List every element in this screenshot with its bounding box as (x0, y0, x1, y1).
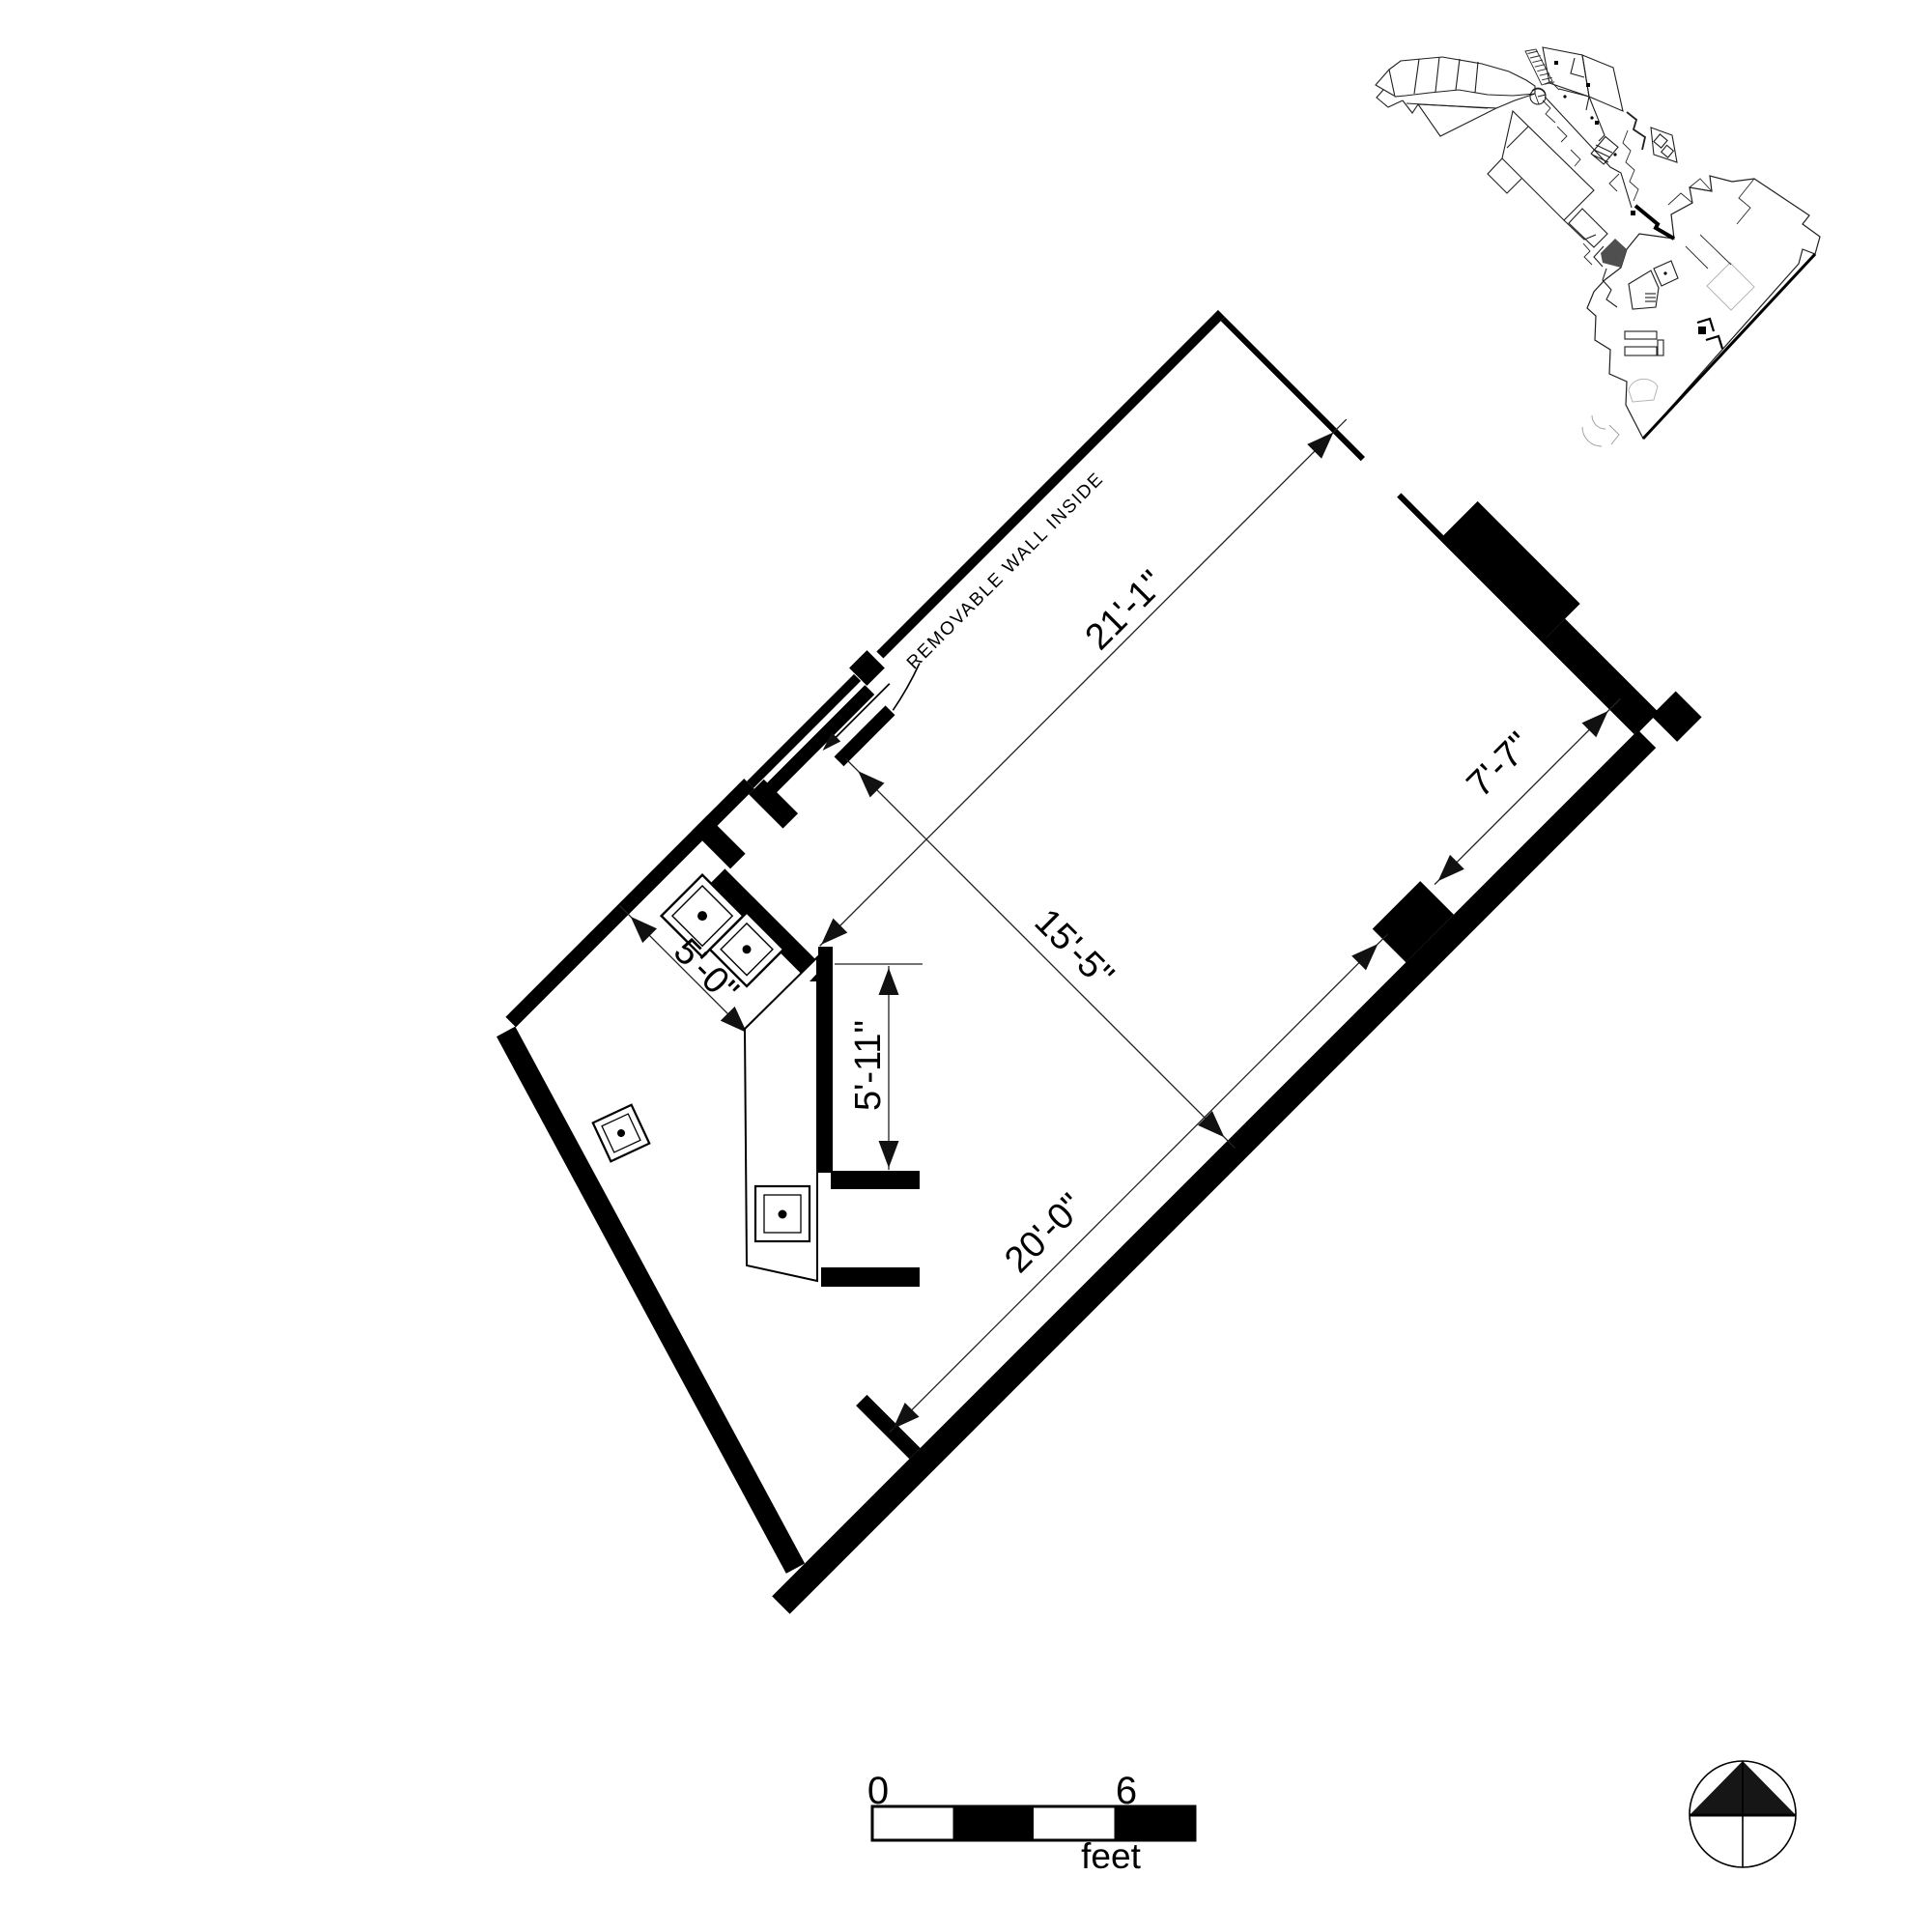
svg-text:0: 0 (867, 1770, 889, 1812)
svg-text:6: 6 (1116, 1770, 1137, 1812)
svg-text:feet: feet (1081, 1836, 1141, 1876)
svg-text:5'-11": 5'-11" (848, 1020, 889, 1111)
